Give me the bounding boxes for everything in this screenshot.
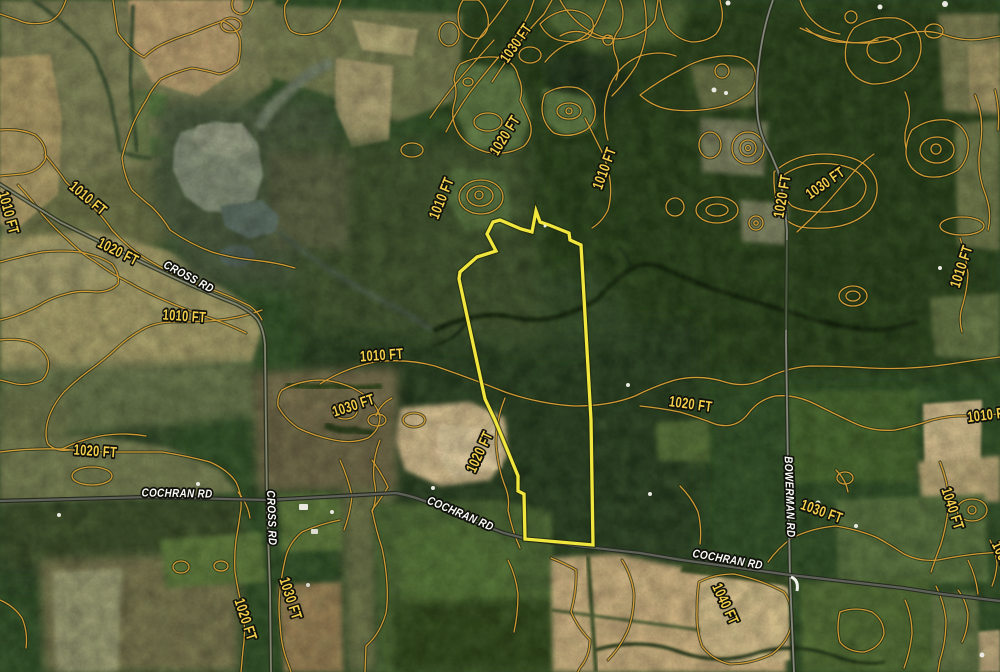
- svg-text:COCHRAN RD: COCHRAN RD: [141, 487, 212, 501]
- svg-text:1010 FT: 1010 FT: [162, 306, 206, 326]
- svg-text:1010 FT: 1010 FT: [359, 345, 403, 365]
- svg-text:CROSS RD: CROSS RD: [264, 490, 279, 545]
- svg-text:1020 FT: 1020 FT: [73, 441, 117, 461]
